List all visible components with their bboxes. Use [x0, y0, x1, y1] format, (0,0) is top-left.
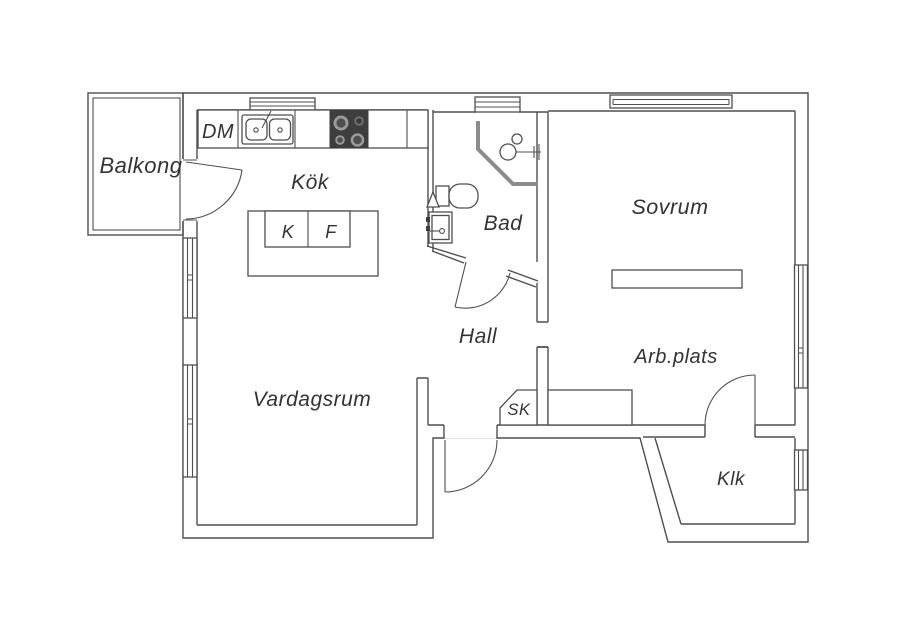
toilet — [436, 184, 478, 208]
label-freezer: F — [325, 222, 337, 242]
bedroom-cabinet — [612, 270, 742, 288]
window-klk — [795, 450, 808, 490]
label-vardagsrum: Vardagsrum — [253, 388, 372, 411]
label-sovrum: Sovrum — [631, 195, 708, 219]
window-living-upper — [183, 238, 197, 318]
label-bad: Bad — [484, 212, 524, 235]
label-dishwasher: DM — [202, 121, 234, 143]
stove — [330, 110, 368, 148]
label-arbplats: Arb.plats — [633, 346, 717, 368]
wall-hall-arbplats-stub — [537, 347, 548, 425]
balcony-door — [181, 159, 242, 221]
floor-plan: Balkong DM Kök K F Bad Sovrum Hall Varda… — [0, 0, 900, 636]
label-balkong: Balkong — [99, 153, 182, 178]
shower-head — [500, 134, 541, 160]
bathroom-door-leaf — [455, 262, 466, 307]
window-bath — [475, 97, 520, 112]
bathroom-door-arc — [455, 273, 510, 308]
label-fridge: K — [282, 222, 295, 242]
wall-klk-slant-inner — [655, 438, 681, 524]
bathroom-door — [455, 262, 510, 308]
entrance-door-arc — [445, 440, 497, 492]
window-living-lower — [183, 365, 197, 477]
klk-door — [705, 375, 755, 439]
arbplats-wardrobe — [548, 390, 632, 425]
bedroom-doorway — [536, 323, 549, 346]
label-kok: Kök — [291, 171, 330, 194]
wall-living-hall — [417, 378, 444, 438]
klk-door-arc — [705, 375, 755, 425]
bath-sink — [426, 212, 452, 243]
fridge-freezer-island — [248, 211, 378, 276]
window-kitchen — [250, 98, 315, 110]
kitchen-sink — [242, 111, 293, 144]
label-klk: Klk — [717, 469, 746, 490]
window-arbplats — [795, 265, 808, 388]
floor-plan-drawing: Balkong DM Kök K F Bad Sovrum Hall Varda… — [0, 0, 900, 636]
label-sk: SK — [507, 401, 531, 419]
entrance-door — [444, 424, 497, 493]
window-bedroom — [610, 95, 732, 108]
apartment-outer-wall — [183, 93, 808, 542]
wall-bath-slant-right — [506, 270, 538, 287]
label-hall: Hall — [459, 325, 498, 348]
